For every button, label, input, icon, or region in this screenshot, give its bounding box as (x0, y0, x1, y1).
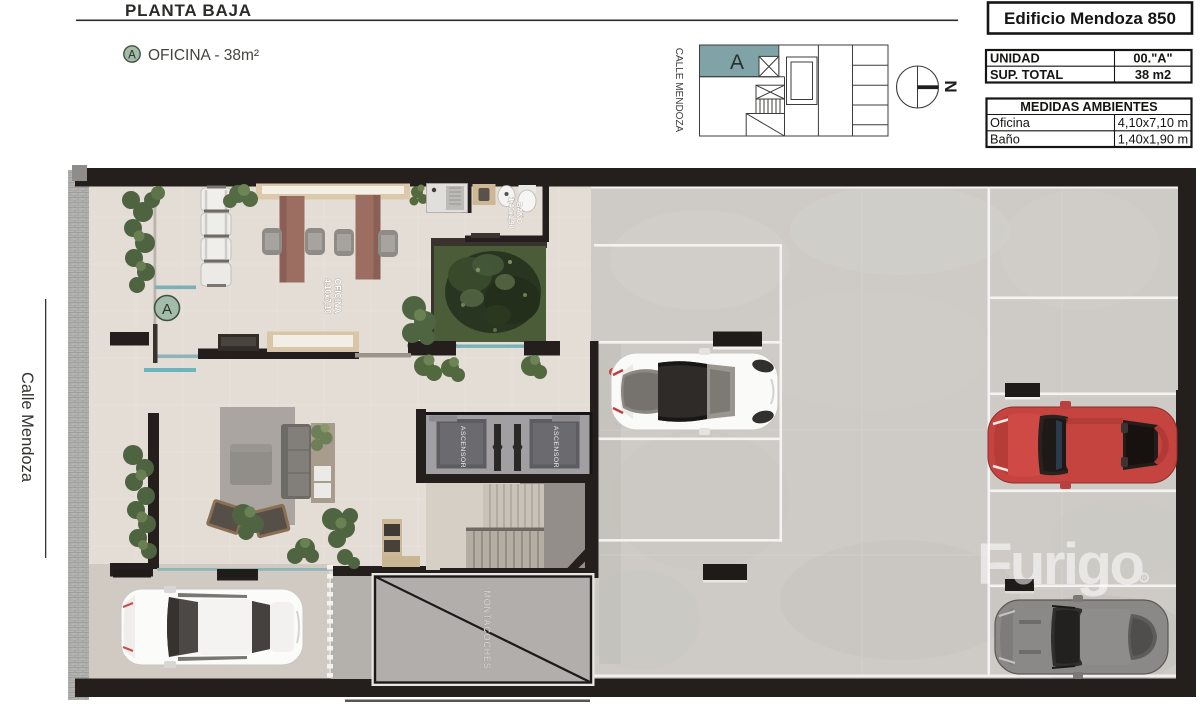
svg-text:ASCENSOR: ASCENSOR (552, 426, 559, 468)
svg-text:1,40x1,90: 1,40x1,90 (507, 197, 514, 228)
svg-text:Edificio Mendoza 850: Edificio Mendoza 850 (1004, 9, 1176, 28)
svg-text:Oficina: Oficina (990, 115, 1031, 130)
svg-text:CALLE MENDOZA: CALLE MENDOZA (673, 48, 684, 133)
svg-text:A: A (128, 50, 136, 62)
svg-text:SUP. TOTAL: SUP. TOTAL (990, 67, 1063, 82)
svg-text:UNIDAD: UNIDAD (990, 51, 1040, 66)
svg-text:A: A (162, 301, 172, 318)
svg-text:38 m2: 38 m2 (1135, 67, 1171, 82)
svg-text:Calle Mendoza: Calle Mendoza (18, 372, 36, 483)
svg-text:R: R (1142, 576, 1147, 582)
svg-text:MEDIDAS AMBIENTES: MEDIDAS AMBIENTES (1020, 99, 1158, 114)
svg-text:N: N (941, 80, 960, 92)
svg-text:Baño: Baño (990, 132, 1020, 147)
svg-text:OFICINA - 38m²: OFICINA - 38m² (148, 47, 259, 64)
svg-text:PLANTA BAJA: PLANTA BAJA (125, 1, 252, 20)
svg-text:00."A": 00."A" (1133, 51, 1172, 66)
svg-text:Furigo: Furigo (977, 532, 1143, 597)
svg-text:ASCENSOR: ASCENSOR (459, 426, 466, 468)
svg-text:OFICINA: OFICINA (333, 279, 343, 314)
svg-text:A: A (730, 51, 744, 74)
svg-text:4,10x7,10: 4,10x7,10 (323, 278, 332, 314)
svg-text:MONTACOCHES: MONTACOCHES (482, 590, 492, 669)
svg-text:1,40x1,90 m: 1,40x1,90 m (1118, 132, 1188, 147)
svg-text:BAÑO: BAÑO (515, 202, 524, 224)
svg-text:4,10x7,10 m: 4,10x7,10 m (1118, 115, 1188, 130)
